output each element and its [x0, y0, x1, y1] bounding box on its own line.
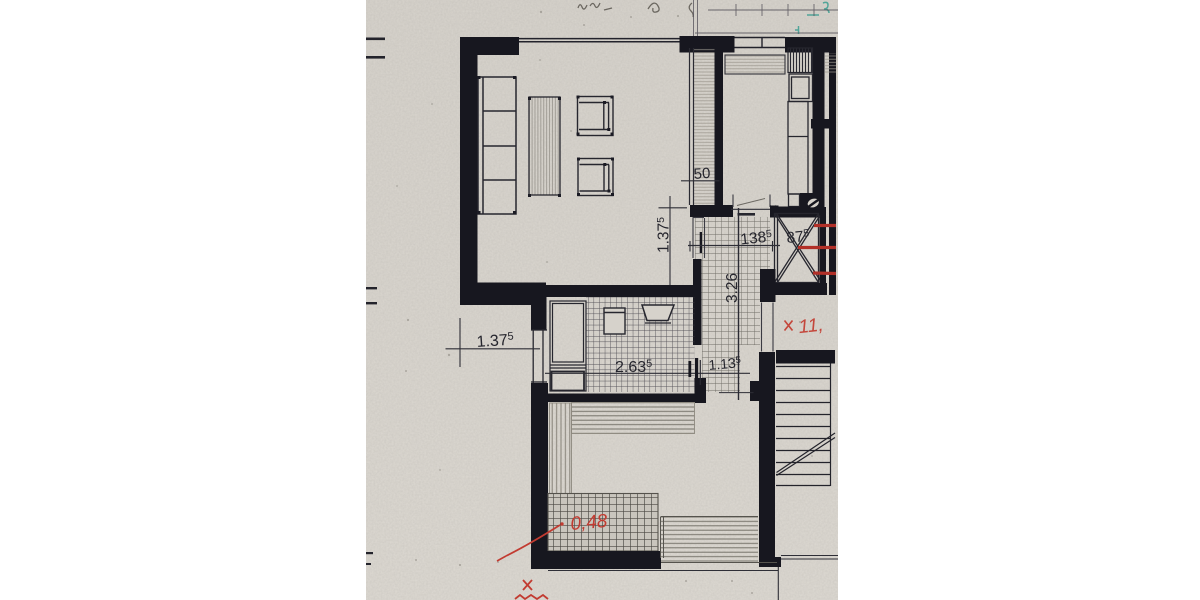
- svg-text:3.26: 3.26: [724, 273, 741, 303]
- svg-text:11,: 11,: [797, 315, 824, 338]
- svg-text:0,48: 0,48: [570, 511, 609, 535]
